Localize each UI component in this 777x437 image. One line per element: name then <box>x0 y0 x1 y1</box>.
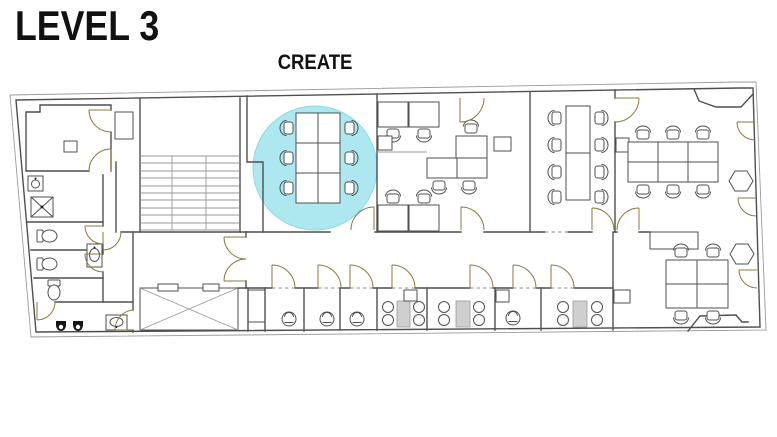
cabinet <box>494 137 511 151</box>
desk <box>378 205 408 231</box>
floor-plan-page: LEVEL 3 CREATE <box>0 0 777 437</box>
floor-plan <box>0 0 777 437</box>
desk <box>378 102 408 127</box>
cabinet <box>496 290 509 302</box>
vanity-sink-icon <box>87 244 102 267</box>
stool-icon <box>320 312 334 326</box>
urinal-icon <box>73 321 83 331</box>
booth-table <box>397 301 410 327</box>
shower-icon <box>31 197 53 217</box>
sink-square-icon <box>28 176 43 191</box>
closet <box>650 232 698 249</box>
column <box>64 141 77 152</box>
toilet-icon <box>48 280 60 300</box>
corridor-walls <box>121 232 698 288</box>
open-office-right <box>628 126 753 198</box>
top-right-chamfer-wall <box>694 89 753 107</box>
meeting-booths <box>383 290 603 327</box>
conference-room <box>530 90 629 232</box>
elevator-shaft <box>140 284 238 330</box>
desk <box>409 102 439 127</box>
cabinet <box>404 290 417 301</box>
desk <box>456 136 487 158</box>
hexagon-pouf <box>730 244 754 264</box>
stool-icon <box>350 312 364 326</box>
staircase <box>140 98 240 232</box>
cabinet <box>378 136 392 150</box>
urinal-icon <box>56 321 66 331</box>
locker <box>248 290 265 322</box>
closet-room <box>115 112 133 139</box>
create-room-table <box>296 113 340 203</box>
toilet-icon <box>37 230 57 242</box>
hexagon-pouf <box>729 171 753 191</box>
stool-icon <box>506 311 520 325</box>
restrooms-block <box>26 105 133 332</box>
door-jamb <box>203 284 219 291</box>
booth-table <box>573 301 587 327</box>
desk <box>409 205 439 231</box>
toilet-icon <box>37 258 57 270</box>
booth-table <box>456 301 470 327</box>
stool-icon <box>282 312 296 326</box>
cabinet <box>616 138 629 152</box>
door-jamb <box>158 284 178 291</box>
office-area <box>377 102 511 231</box>
cabinet <box>614 290 630 303</box>
